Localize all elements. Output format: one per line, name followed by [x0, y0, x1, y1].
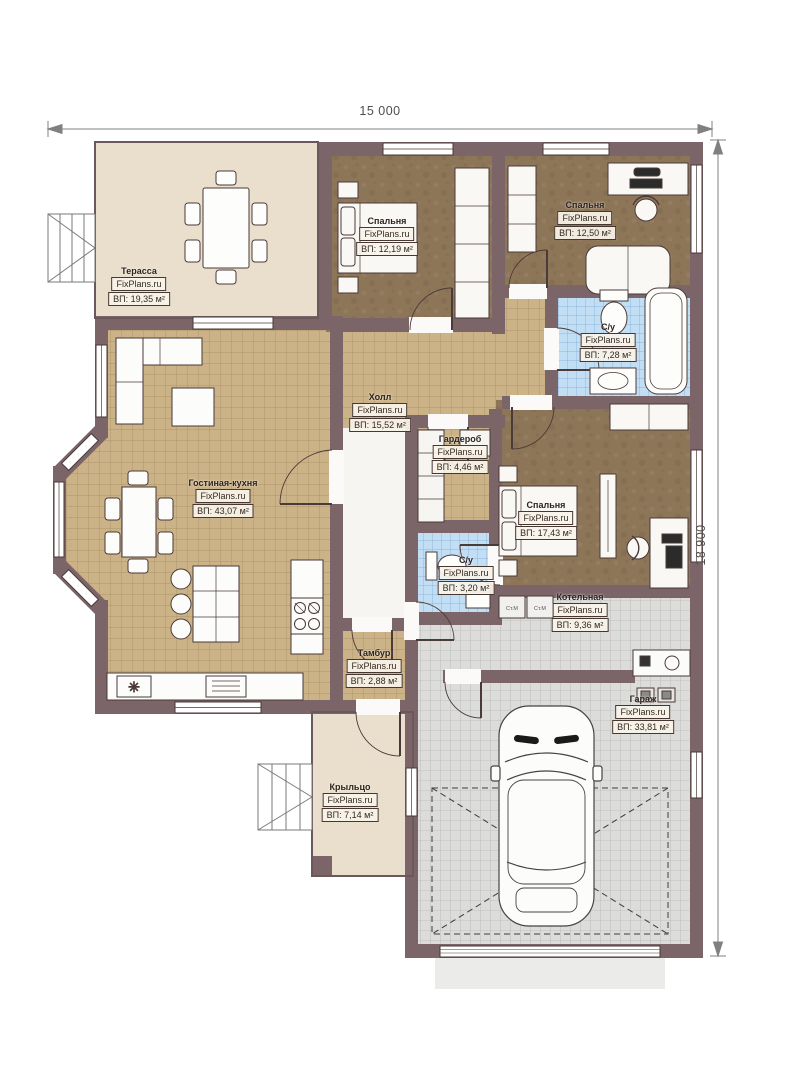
room-area: ВП: 33,81 м²	[612, 720, 674, 734]
room-label-bathroom1: С/у FixPlans.ru ВП: 7,28 м²	[580, 322, 637, 362]
corridor-floor	[343, 428, 405, 623]
svg-text:Ст.М: Ст.М	[506, 606, 518, 612]
room-label-porch: Крыльцо FixPlans.ru ВП: 7,14 м²	[322, 782, 379, 822]
brand-watermark: FixPlans.ru	[195, 489, 250, 503]
room-label-boiler: Котельная FixPlans.ru ВП: 9,36 м²	[552, 592, 609, 632]
room-label-bedroom1: Спальня FixPlans.ru ВП: 12,19 м²	[356, 216, 418, 256]
room-name: Крыльцо	[322, 782, 379, 792]
brand-watermark: FixPlans.ru	[111, 277, 166, 291]
washbasin	[590, 368, 636, 394]
room-area: ВП: 2,88 м²	[346, 674, 403, 688]
dining-table	[122, 487, 156, 557]
room-name: Холл	[349, 392, 411, 402]
room-name: Спальня	[356, 216, 418, 226]
garage-door	[440, 946, 660, 957]
room-name: С/у	[438, 555, 495, 565]
room-name: С/у	[580, 322, 637, 332]
room-area: ВП: 9,36 м²	[552, 618, 609, 632]
floor-plan-page: ✳ Ст.М Ст.М	[0, 0, 792, 1080]
room-name: Тамбур	[346, 648, 403, 658]
room-label-vestibule: Тамбур FixPlans.ru ВП: 2,88 м²	[346, 648, 403, 688]
brand-watermark: FixPlans.ru	[346, 659, 401, 673]
floor-plan-canvas: ✳ Ст.М Ст.М	[0, 0, 792, 1080]
room-area: ВП: 3,20 м²	[438, 581, 495, 595]
room-label-bedroom2: Спальня FixPlans.ru ВП: 12,50 м²	[554, 200, 616, 240]
room-label-wardrobe: Гардероб FixPlans.ru ВП: 4,46 м²	[432, 434, 489, 474]
brand-watermark: FixPlans.ru	[438, 566, 493, 580]
room-name: Спальня	[515, 500, 577, 510]
brand-watermark: FixPlans.ru	[432, 445, 487, 459]
room-label-bedroom3: Спальня FixPlans.ru ВП: 17,43 м²	[515, 500, 577, 540]
room-name: Гараж	[612, 694, 674, 704]
svg-text:Ст.М: Ст.М	[534, 606, 546, 612]
porch-column	[312, 856, 332, 876]
dimension-height: 18 900	[694, 524, 708, 565]
brand-watermark: FixPlans.ru	[359, 227, 414, 241]
room-label-terrace: Терасса FixPlans.ru ВП: 19,35 м²	[108, 266, 170, 306]
brand-watermark: FixPlans.ru	[518, 511, 573, 525]
brand-watermark: FixPlans.ru	[557, 211, 612, 225]
svg-text:✳: ✳	[128, 679, 140, 695]
car	[491, 706, 602, 926]
room-area: ВП: 17,43 м²	[515, 526, 577, 540]
room-area: ВП: 12,50 м²	[554, 226, 616, 240]
coffee-table	[172, 388, 214, 426]
room-name: Гостиная-кухня	[189, 478, 258, 488]
room-area: ВП: 7,28 м²	[580, 348, 637, 362]
brand-watermark: FixPlans.ru	[322, 793, 377, 807]
driveway-apron	[435, 955, 665, 989]
brand-watermark: FixPlans.ru	[615, 705, 670, 719]
room-area: ВП: 12,19 м²	[356, 242, 418, 256]
room-area: ВП: 4,46 м²	[432, 460, 489, 474]
brand-watermark: FixPlans.ru	[552, 603, 607, 617]
room-area: ВП: 19,35 м²	[108, 292, 170, 306]
room-label-bathroom2: С/у FixPlans.ru ВП: 3,20 м²	[438, 555, 495, 595]
room-area: ВП: 43,07 м²	[192, 504, 254, 518]
room-area: ВП: 7,14 м²	[322, 808, 379, 822]
room-area: ВП: 15,52 м²	[349, 418, 411, 432]
bathtub	[645, 288, 687, 394]
room-name: Котельная	[552, 592, 609, 602]
room-name: Гардероб	[432, 434, 489, 444]
room-label-garage: Гараж FixPlans.ru ВП: 33,81 м²	[612, 694, 674, 734]
brand-watermark: FixPlans.ru	[352, 403, 407, 417]
porch-stairs	[258, 764, 312, 830]
bar-stool	[171, 569, 191, 589]
room-name: Спальня	[554, 200, 616, 210]
terrace-stairs	[48, 214, 95, 282]
room-label-living-kitchen: Гостиная-кухня FixPlans.ru ВП: 43,07 м²	[189, 478, 258, 518]
brand-watermark: FixPlans.ru	[580, 333, 635, 347]
dimension-width: 15 000	[359, 104, 400, 118]
room-label-hall: Холл FixPlans.ru ВП: 15,52 м²	[349, 392, 411, 432]
room-name: Терасса	[108, 266, 170, 276]
